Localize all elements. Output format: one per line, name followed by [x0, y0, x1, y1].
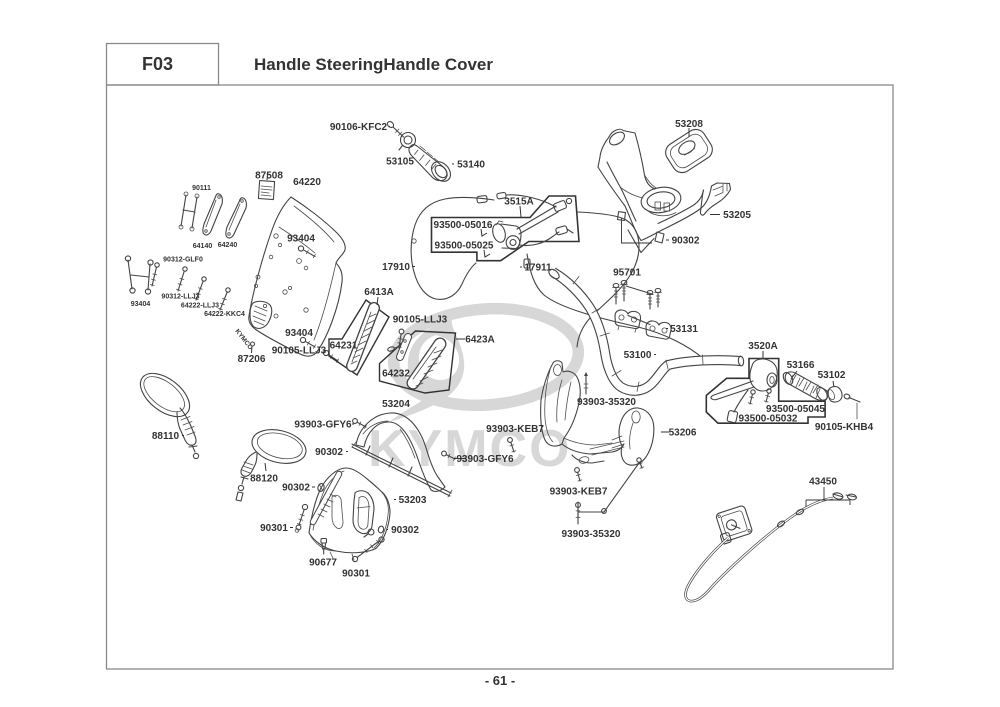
svg-text:90302: 90302 [315, 447, 343, 458]
svg-text:93500-05025: 93500-05025 [435, 241, 494, 252]
svg-text:90302: 90302 [672, 236, 700, 247]
svg-text:90677: 90677 [309, 558, 337, 569]
svg-text:93903-KEB7: 93903-KEB7 [486, 424, 544, 435]
svg-text:Handle SteeringHandle Cover: Handle SteeringHandle Cover [254, 55, 493, 74]
svg-text:90301: 90301 [260, 523, 288, 534]
svg-text:3520A: 3520A [748, 341, 777, 352]
svg-text:90312-LLJ3: 90312-LLJ3 [161, 294, 199, 301]
svg-text:53102: 53102 [818, 370, 846, 381]
svg-text:64232: 64232 [382, 369, 410, 380]
svg-text:95701: 95701 [613, 268, 641, 279]
svg-text:17911: 17911 [524, 263, 552, 274]
svg-text:93903-35320: 93903-35320 [562, 529, 621, 540]
svg-text:64231: 64231 [330, 341, 358, 352]
svg-text:64220: 64220 [293, 177, 321, 188]
svg-text:90106-KFC2: 90106-KFC2 [330, 122, 388, 133]
svg-text:90105-KHB4: 90105-KHB4 [815, 422, 874, 433]
svg-text:87206: 87206 [238, 354, 266, 365]
svg-text:53203: 53203 [399, 495, 427, 506]
svg-text:53140: 53140 [457, 160, 485, 171]
svg-text:93404: 93404 [285, 328, 313, 339]
svg-text:93903-GFY6: 93903-GFY6 [294, 420, 352, 431]
svg-text:93500-05032: 93500-05032 [739, 414, 798, 425]
svg-text:53208: 53208 [675, 119, 703, 130]
svg-text:93404: 93404 [131, 301, 151, 308]
svg-text:64222-KKC4: 64222-KKC4 [204, 311, 245, 318]
svg-text:53205: 53205 [723, 210, 751, 221]
svg-text:6413A: 6413A [364, 287, 393, 298]
svg-text:53204: 53204 [382, 399, 410, 410]
svg-text:17910: 17910 [382, 262, 410, 273]
svg-text:53166: 53166 [787, 360, 815, 371]
svg-text:93903-GFY6: 93903-GFY6 [456, 454, 514, 465]
svg-text:- 61 -: - 61 - [485, 673, 515, 688]
svg-text:93903-35320: 93903-35320 [577, 397, 636, 408]
svg-text:90302: 90302 [391, 525, 419, 536]
svg-text:53131: 53131 [670, 324, 698, 335]
svg-text:64140: 64140 [193, 243, 213, 250]
svg-text:53105: 53105 [386, 157, 414, 168]
svg-text:88110: 88110 [152, 431, 180, 442]
svg-text:F03: F03 [142, 54, 173, 74]
svg-text:90105-LLJ3: 90105-LLJ3 [272, 346, 327, 357]
svg-text:43450: 43450 [809, 477, 837, 488]
svg-text:3515A: 3515A [504, 197, 533, 208]
svg-text:90312-GLF0: 90312-GLF0 [163, 257, 203, 264]
svg-text:90105-LLJ3: 90105-LLJ3 [393, 315, 448, 326]
svg-text:88120: 88120 [250, 474, 278, 485]
svg-text:93500-05016: 93500-05016 [434, 220, 493, 231]
svg-text:53206: 53206 [669, 428, 697, 439]
svg-text:53100: 53100 [624, 350, 652, 361]
svg-text:64240: 64240 [218, 242, 238, 249]
svg-text:90111: 90111 [192, 185, 211, 192]
svg-text:90301: 90301 [342, 569, 370, 580]
svg-text:93903-KEB7: 93903-KEB7 [550, 487, 608, 498]
svg-text:64222-LLJ3: 64222-LLJ3 [181, 303, 219, 310]
svg-text:93404: 93404 [287, 234, 315, 245]
svg-text:87508: 87508 [255, 171, 283, 182]
svg-text:6423A: 6423A [465, 335, 494, 346]
svg-text:90302: 90302 [282, 483, 310, 494]
